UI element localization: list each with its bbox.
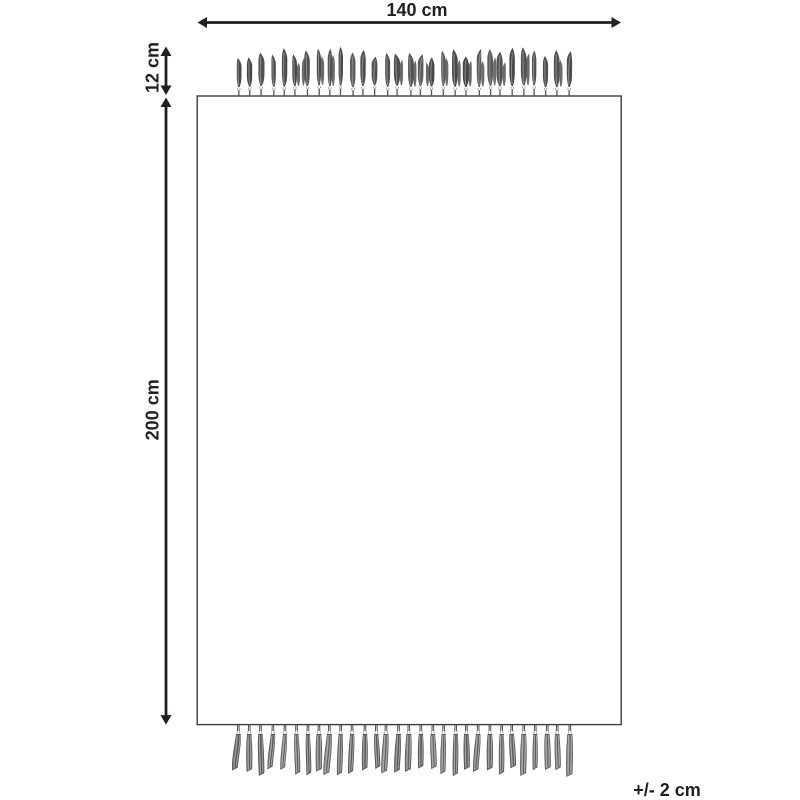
svg-text:+/- 2 cm: +/- 2 cm <box>633 780 701 800</box>
svg-text:12 cm: 12 cm <box>143 42 163 93</box>
svg-text:200 cm: 200 cm <box>143 379 163 440</box>
svg-text:140 cm: 140 cm <box>386 0 447 20</box>
